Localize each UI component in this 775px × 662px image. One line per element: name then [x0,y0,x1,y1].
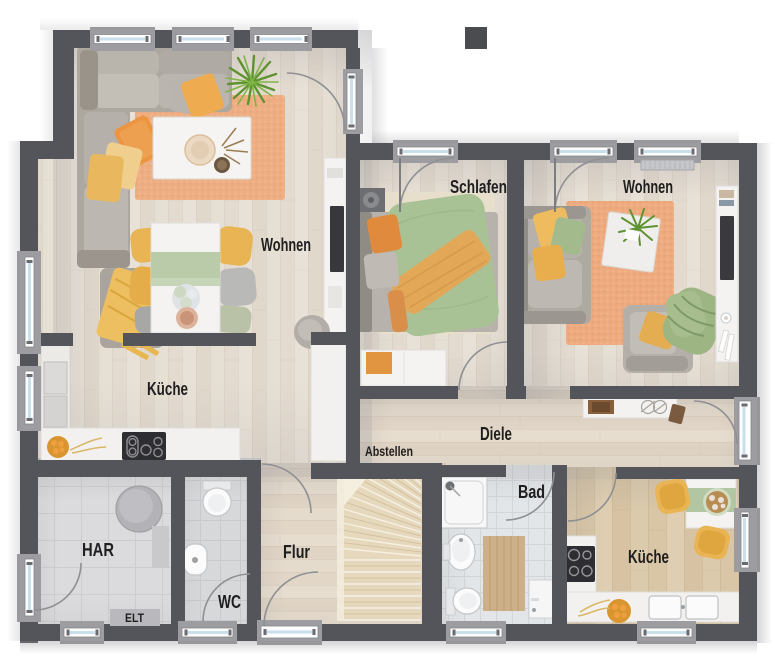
svg-text:Küche: Küche [628,547,669,567]
svg-text:Flur: Flur [283,542,310,562]
svg-text:ELT: ELT [125,611,145,625]
svg-text:Wohnen: Wohnen [623,177,673,197]
svg-text:HAR: HAR [82,540,114,560]
svg-text:Abstellen: Abstellen [365,443,413,459]
svg-text:Schlafen: Schlafen [450,177,507,197]
svg-text:Diele: Diele [480,424,512,444]
svg-text:Wohnen: Wohnen [261,235,311,255]
svg-text:Bad: Bad [518,482,545,502]
svg-text:Küche: Küche [147,379,188,399]
svg-text:WC: WC [218,592,241,612]
